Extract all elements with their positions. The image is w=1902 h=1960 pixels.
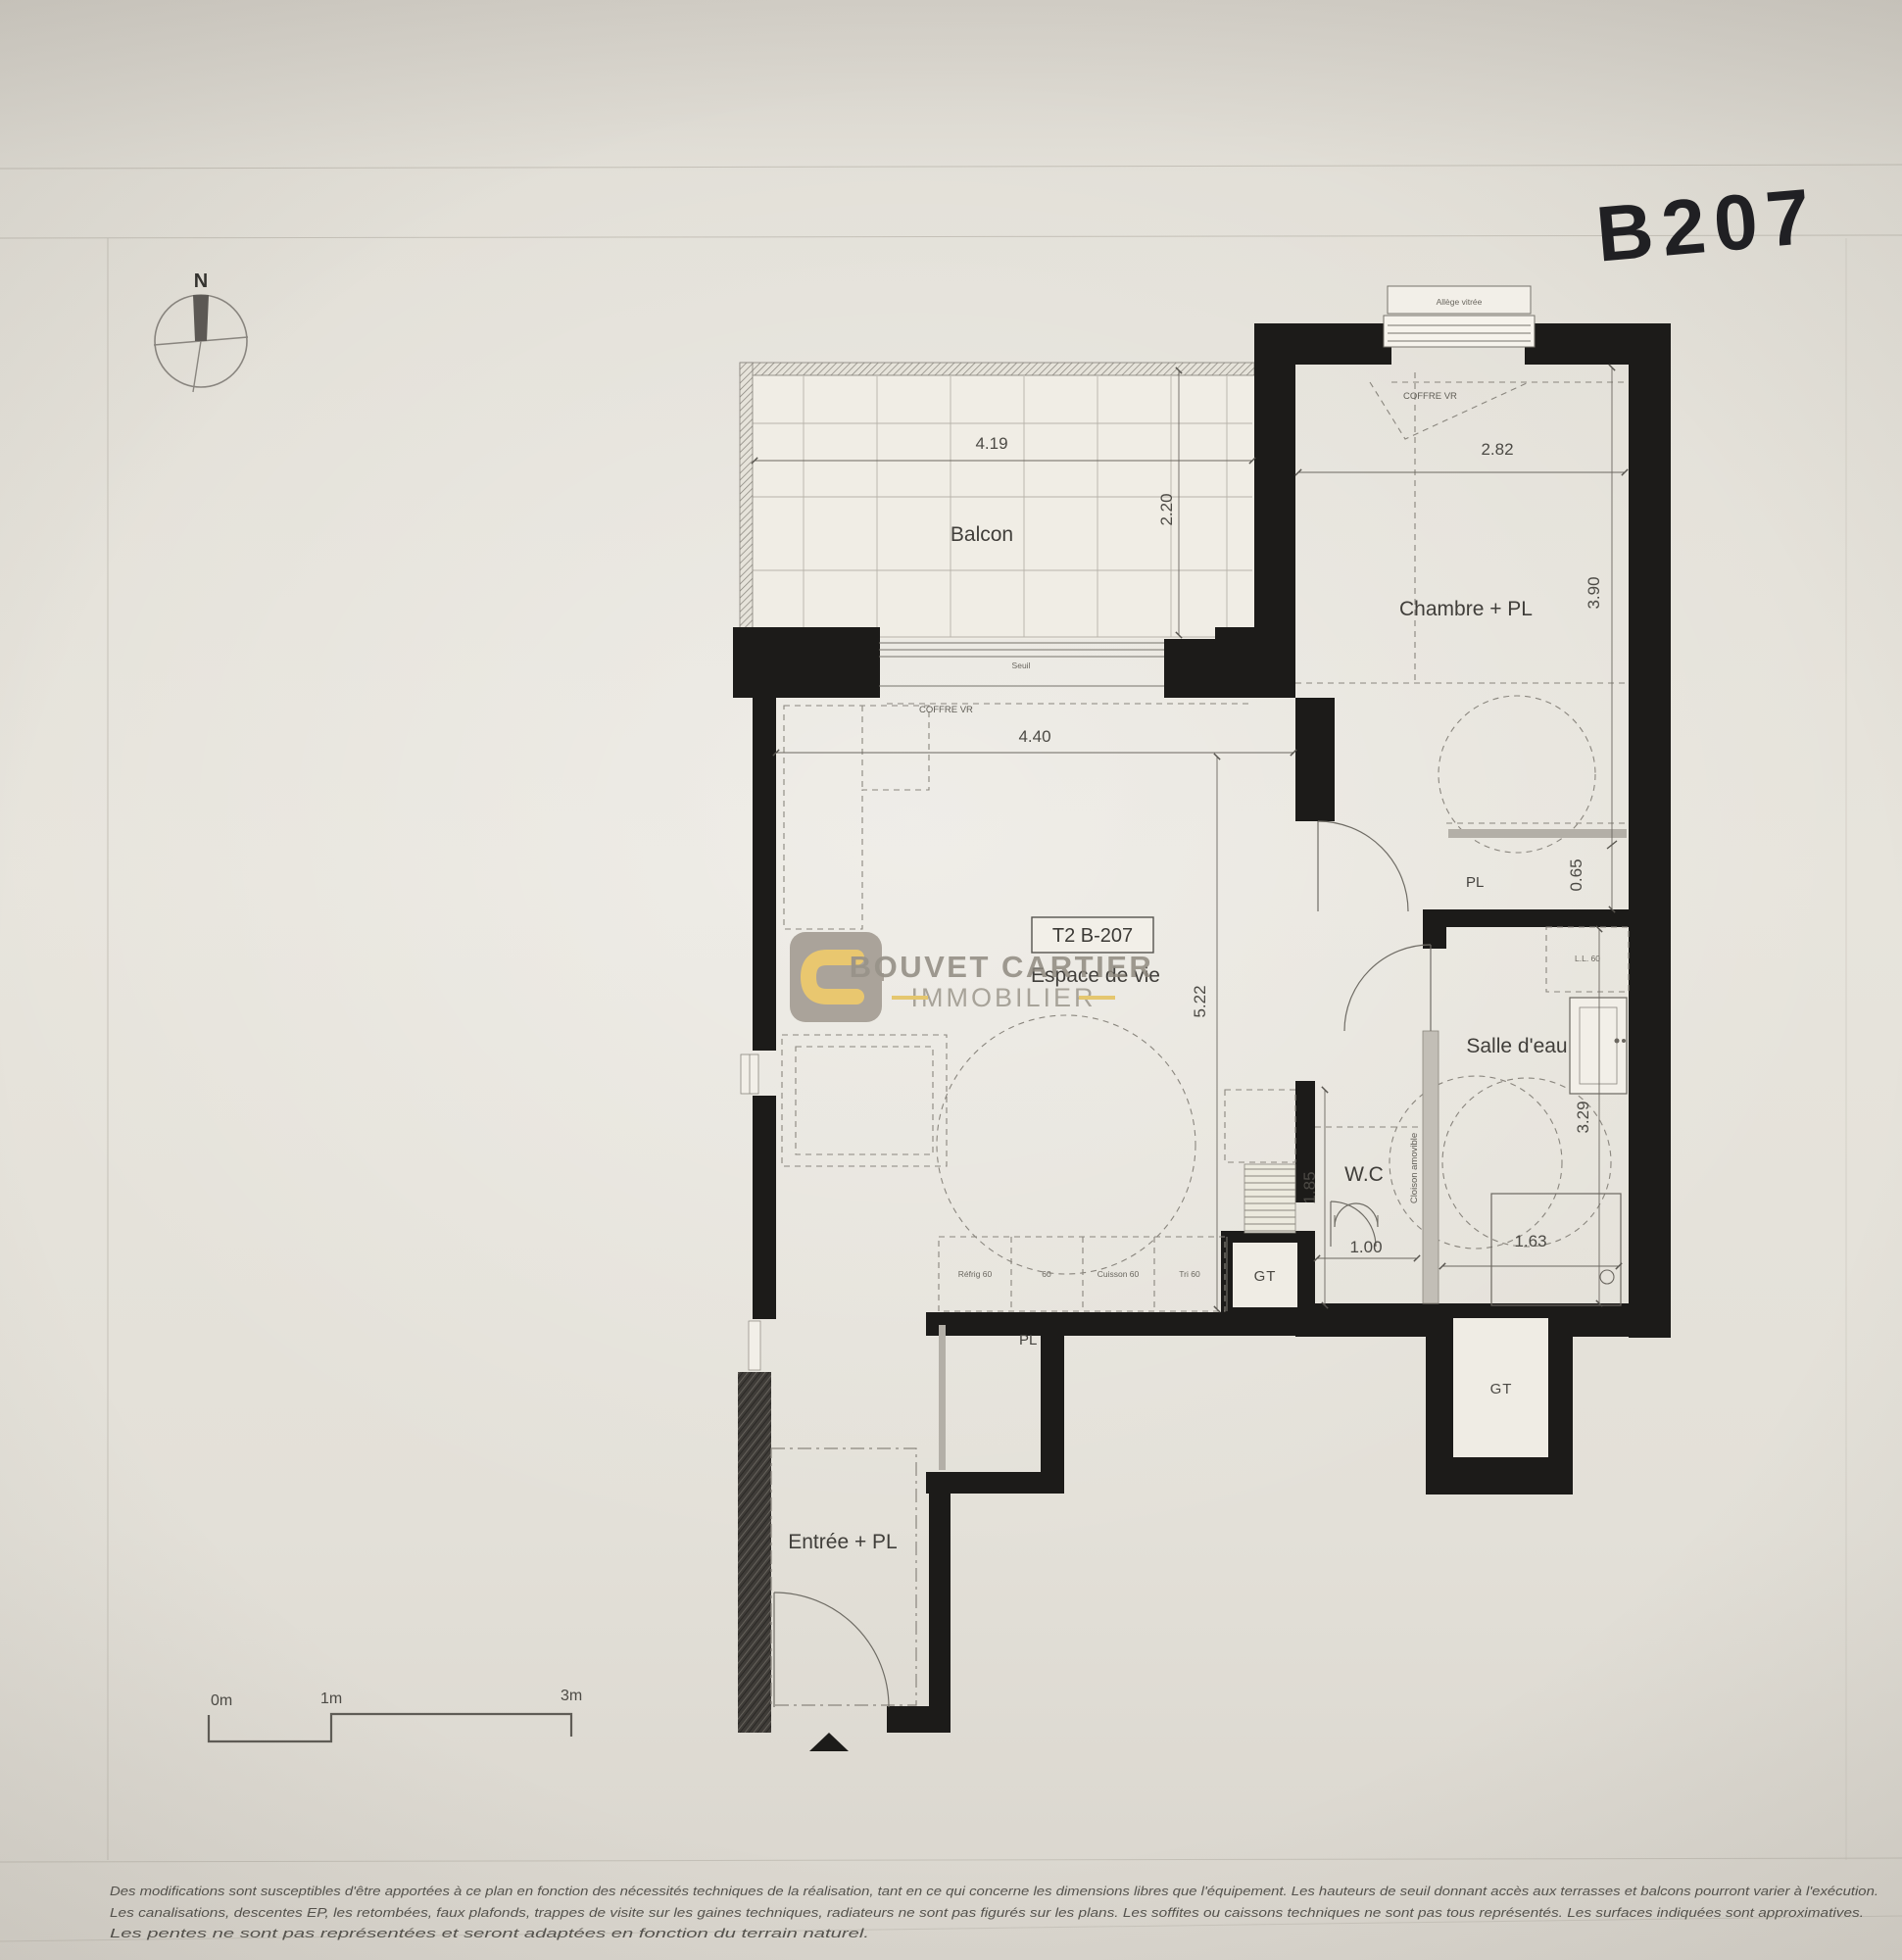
scale-3m: 3m <box>561 1688 582 1704</box>
gt-upper-label: GT <box>1254 1268 1277 1285</box>
dim-douche-w: 1.63 <box>1514 1232 1546 1250</box>
north-label: N <box>194 270 208 292</box>
footer-line-2: Les canalisations, descentes EP, les ret… <box>110 1905 1864 1920</box>
watermark-brand-2: IMMOBILIER <box>910 983 1096 1012</box>
unit-label: T2 B-207 <box>1052 925 1133 947</box>
kitchen-unit-tri: Tri 60 <box>1179 1269 1200 1279</box>
scale-bar: 0m 1m 3m <box>209 1688 582 1741</box>
room-label-entree: Entrée + PL <box>788 1531 898 1553</box>
door-entree <box>774 1592 889 1707</box>
watermark-brand: BOUVET CARTIER <box>850 950 1154 984</box>
room-label-wc: W.C <box>1344 1163 1384 1186</box>
handwritten-code: B207 <box>1592 171 1822 277</box>
dim-balcon-w: 4.19 <box>975 434 1007 453</box>
dim-sde-d: 3.29 <box>1574 1101 1592 1133</box>
north-needle-icon <box>193 295 209 341</box>
dim-sejour-d: 5.22 <box>1191 985 1209 1017</box>
dim-wc-d: 1.85 <box>1300 1171 1319 1203</box>
vanity <box>1570 998 1627 1094</box>
room-label-pl-chambre: PL <box>1466 874 1484 891</box>
party-wall-hatched <box>738 1372 771 1733</box>
room-label-salle-deau: Salle d'eau <box>1466 1035 1567 1057</box>
dim-chambre-d: 3.90 <box>1585 576 1603 609</box>
low-table <box>782 1035 947 1166</box>
dim-wc-w: 1.00 <box>1349 1238 1382 1256</box>
cloison-amovible-label: Cloison amovible <box>1409 1133 1420 1203</box>
footer-disclaimer: Des modifications sont susceptibles d'êt… <box>110 1884 1878 1940</box>
room-label-chambre: Chambre + PL <box>1399 598 1533 620</box>
north-compass: N <box>154 270 248 392</box>
round-table <box>937 1015 1195 1274</box>
sofa <box>784 706 929 929</box>
toilet <box>1335 1203 1378 1227</box>
room-label-pl-entree: PL <box>1019 1332 1037 1348</box>
door-salle-deau <box>1344 945 1431 1031</box>
footer-line-1: Des modifications sont susceptibles d'êt… <box>110 1884 1878 1898</box>
entrance-marker-icon <box>809 1733 849 1751</box>
shower-drain <box>1600 1270 1614 1284</box>
floorplan-photo: B207 N <box>0 0 1902 1960</box>
duct-hatch <box>1244 1164 1295 1233</box>
closet-sliding-door <box>1448 829 1627 838</box>
scale-0m: 0m <box>211 1692 232 1709</box>
dim-sejour-w: 4.40 <box>1018 727 1050 746</box>
allege-vitree-label: Allège vitrée <box>1437 297 1483 307</box>
coffre-vr-sejour-label: COFFRE VR <box>919 705 973 715</box>
kitchen-unit-cuisson: Cuisson 60 <box>1097 1269 1140 1279</box>
entree-boundary <box>771 1448 916 1705</box>
seuil-label: Seuil <box>1012 661 1031 670</box>
scale-1m: 1m <box>320 1690 342 1707</box>
kitchen-unit-60: 60 <box>1042 1269 1051 1279</box>
cloison-amovible-wall <box>1423 1031 1439 1303</box>
dim-chambre-w: 2.82 <box>1481 440 1513 459</box>
wall-slot <box>749 1321 760 1370</box>
lave-linge-label: L.L. 60 <box>1575 954 1600 963</box>
footer-line-3: Les pentes ne sont pas représentées et s… <box>110 1926 869 1940</box>
room-label-balcon: Balcon <box>951 523 1013 546</box>
pl-sliding-door <box>939 1325 946 1470</box>
gt-lower-label: GT <box>1490 1381 1513 1397</box>
door-chambre <box>1318 821 1408 911</box>
shower-tray <box>1491 1194 1621 1305</box>
coffre-vr-chambre-label: COFFRE VR <box>1403 391 1457 402</box>
floorplan-canvas: B207 N <box>0 0 1902 1960</box>
kitchen-unit-refrig: Réfrig 60 <box>958 1269 993 1279</box>
balcony <box>740 363 1254 639</box>
balcony-railing-left <box>740 363 753 639</box>
dim-balcon-d: 2.20 <box>1157 493 1176 525</box>
balcony-railing-top <box>740 363 1254 375</box>
dim-placard-d: 0.65 <box>1567 858 1585 891</box>
